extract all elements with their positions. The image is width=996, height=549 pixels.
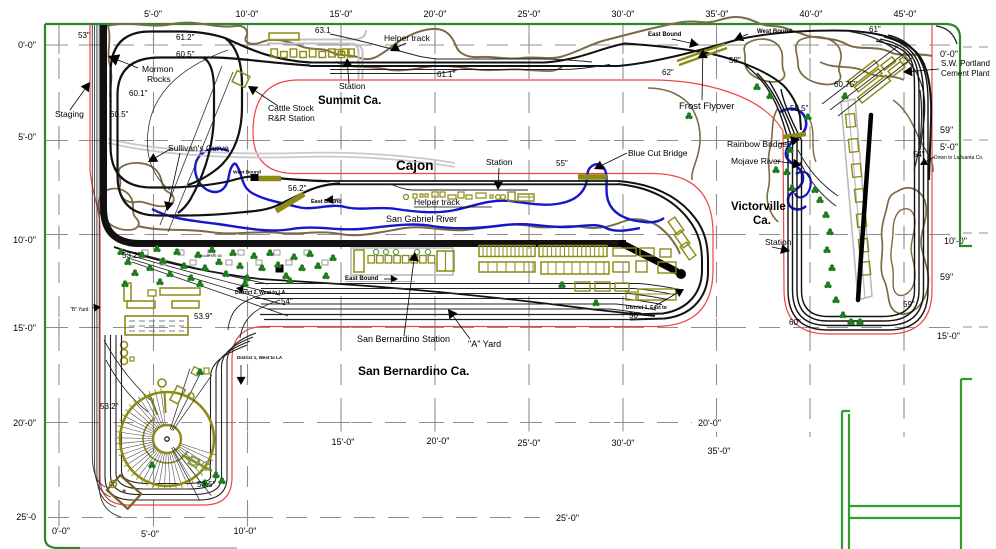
svg-text:25'-0": 25'-0"	[556, 513, 579, 523]
svg-text:25'-0": 25'-0"	[518, 9, 541, 19]
svg-text:60.1": 60.1"	[129, 89, 148, 98]
svg-text:10'-0": 10'-0"	[13, 235, 36, 245]
svg-text:25'-0": 25'-0"	[518, 438, 541, 448]
svg-text:Route US 66: Route US 66	[200, 254, 222, 258]
svg-text:56.2": 56.2"	[288, 184, 307, 193]
svg-text:59": 59"	[940, 125, 953, 135]
svg-text:0'-0": 0'-0"	[18, 40, 36, 50]
svg-text:Helper track: Helper track	[384, 33, 431, 43]
svg-text:58": 58"	[729, 56, 741, 65]
svg-text:Rainbow Bridge: Rainbow Bridge	[727, 139, 787, 149]
svg-text:Victorville: Victorville	[731, 201, 786, 213]
svg-text:Cement Plant: Cement Plant	[941, 69, 990, 78]
svg-text:54": 54"	[913, 150, 925, 159]
svg-text:58": 58"	[629, 311, 641, 320]
svg-text:10'-0": 10'-0"	[236, 9, 259, 19]
svg-text:5'-0": 5'-0"	[141, 529, 159, 539]
svg-text:5'-0": 5'-0"	[144, 9, 162, 19]
svg-text:Ca.: Ca.	[753, 215, 771, 227]
svg-text:Frost Flyover: Frost Flyover	[679, 101, 734, 112]
svg-text:61.2": 61.2"	[176, 33, 195, 42]
svg-text:40'-0": 40'-0"	[800, 9, 823, 19]
svg-text:59": 59"	[940, 272, 953, 282]
svg-text:Helper track: Helper track	[414, 197, 461, 207]
svg-text:R&R Station: R&R Station	[268, 113, 315, 123]
svg-text:Summit Ca.: Summit Ca.	[318, 95, 381, 107]
svg-text:S.W. Portland: S.W. Portland	[941, 59, 990, 68]
svg-text:West Bound: West Bound	[233, 170, 261, 176]
svg-text:53": 53"	[78, 31, 90, 40]
svg-text:20'-0": 20'-0"	[427, 436, 450, 446]
svg-text:East Bound: East Bound	[648, 32, 682, 38]
svg-text:"A" Yard: "A" Yard	[468, 339, 501, 349]
svg-text:20'-0": 20'-0"	[698, 418, 721, 428]
svg-text:15'-0": 15'-0"	[330, 9, 353, 19]
svg-text:53.9": 53.9"	[194, 312, 213, 321]
svg-text:53.2": 53.2"	[100, 402, 119, 411]
svg-text:Station: Station	[486, 157, 513, 167]
svg-text:59": 59"	[903, 300, 915, 309]
svg-text:0'-0": 0'-0"	[940, 49, 958, 59]
svg-text:Rocks: Rocks	[147, 74, 171, 84]
svg-text:Station: Station	[339, 81, 366, 91]
svg-text:60.5": 60.5"	[176, 50, 195, 59]
svg-text:20'-0": 20'-0"	[13, 418, 36, 428]
svg-text:Sullivan's Curve: Sullivan's Curve	[168, 143, 229, 153]
svg-text:62": 62"	[662, 68, 674, 77]
svg-text:Blue Cut Bridge: Blue Cut Bridge	[628, 148, 688, 158]
svg-text:61": 61"	[869, 25, 881, 34]
svg-text:Mormon: Mormon	[142, 64, 173, 74]
svg-text:5'-0": 5'-0"	[940, 142, 958, 152]
svg-text:15'-0": 15'-0"	[937, 331, 960, 341]
svg-text:Station: Station	[765, 237, 792, 247]
svg-text:45'-0": 45'-0"	[894, 9, 917, 19]
svg-text:35'-0": 35'-0"	[708, 446, 731, 456]
svg-text:20'-0": 20'-0"	[424, 9, 447, 19]
svg-text:60.5": 60.5"	[110, 110, 129, 119]
svg-text:53.2": 53.2"	[122, 251, 141, 260]
svg-text:San Bernardino Ca.: San Bernardino Ca.	[358, 364, 469, 378]
svg-text:Cattle Stock: Cattle Stock	[268, 103, 315, 113]
svg-text:5'-0": 5'-0"	[18, 132, 36, 142]
svg-text:15'-0": 15'-0"	[13, 323, 36, 333]
svg-text:West Bound: West Bound	[757, 29, 792, 35]
svg-text:15'-0": 15'-0"	[332, 437, 355, 447]
svg-text:53.5": 53.5"	[197, 480, 216, 489]
svg-text:60.75": 60.75"	[834, 80, 857, 89]
svg-text:Cajon: Cajon	[396, 158, 434, 173]
svg-text:30'-0": 30'-0"	[612, 9, 635, 19]
svg-text:Down to LaJuanta Co.: Down to LaJuanta Co.	[934, 155, 983, 161]
svg-text:55": 55"	[556, 159, 568, 168]
svg-text:61.1": 61.1"	[437, 70, 456, 79]
svg-text:10'-0": 10'-0"	[234, 526, 257, 536]
svg-text:10'-0": 10'-0"	[944, 236, 967, 246]
svg-text:Staging: Staging	[55, 109, 84, 119]
svg-text:59.5": 59.5"	[790, 104, 809, 113]
svg-text:San Bernardino Station: San Bernardino Station	[357, 334, 450, 344]
svg-text:60": 60"	[789, 318, 801, 327]
svg-text:25'-0: 25'-0	[16, 512, 36, 522]
svg-text:Mojave River: Mojave River	[731, 156, 781, 166]
svg-text:54": 54"	[281, 297, 293, 306]
svg-text:District 1, West to LA: District 1, West to LA	[237, 355, 283, 360]
svg-text:63.1: 63.1	[315, 26, 331, 35]
svg-text:"B" Yard: "B" Yard	[70, 307, 89, 313]
svg-text:San Gabriel River: San Gabriel River	[386, 214, 457, 224]
svg-text:30'-0": 30'-0"	[612, 438, 635, 448]
svg-text:0'-0": 0'-0"	[52, 526, 70, 536]
